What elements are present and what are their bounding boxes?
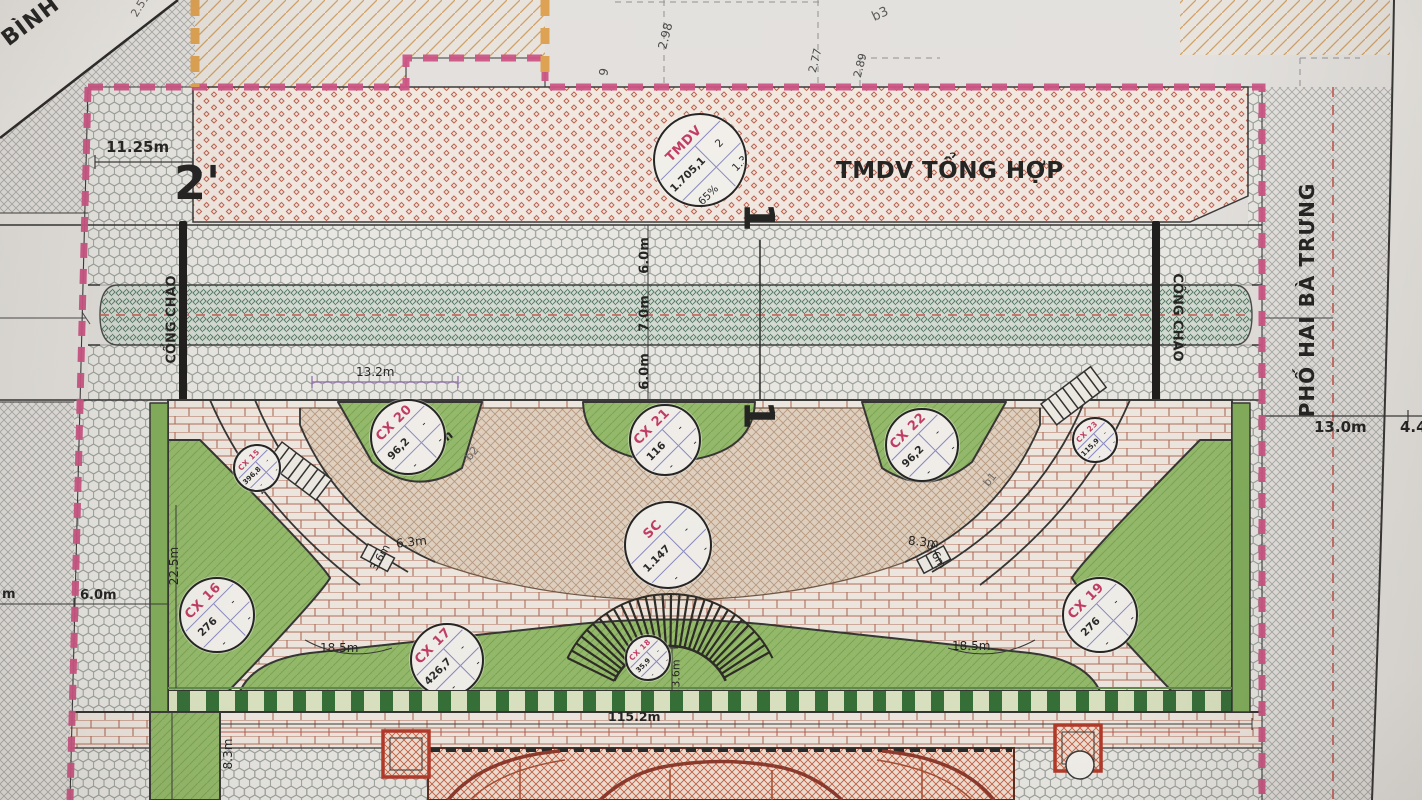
dim-11-25m: 11.25m xyxy=(106,140,169,155)
plan-circle-cx17: CX 17 426,7- -- xyxy=(410,623,484,697)
site-plan-drawing: ÁI BÌNH 2.51 11.25m 2' 9 2.98 2.77 2.89 … xyxy=(0,0,1422,800)
dim-22-5m: 22.5m xyxy=(168,542,180,590)
section-mark-1-bottom: 1 xyxy=(738,400,780,429)
top-hatch-right xyxy=(1180,0,1390,55)
section-mark-1-top: 1 xyxy=(738,202,780,231)
dim-road-top: 6.0m xyxy=(639,232,652,280)
gate-right-label: CỔNG CHÀO xyxy=(1171,263,1184,373)
plan-circle-cx16: CX 16 276- -- xyxy=(179,577,255,653)
plan-circle-cx21: CX 21 116- -- xyxy=(629,404,701,476)
dim-18-5m-left: 18.5m xyxy=(320,642,358,654)
dim-8-3m-bottom: 8.3m xyxy=(222,732,234,776)
dim-13-2m: 13.2m xyxy=(356,366,394,378)
dim-road-mid: 7.0m xyxy=(639,290,652,338)
plan-circle-cx23: CX 23 115,9- -- xyxy=(1072,417,1118,463)
dim-6-0m-left: 6.0m xyxy=(80,589,117,602)
dim-13-0m: 13.0m xyxy=(1314,420,1367,435)
tree-planter-strip xyxy=(168,690,1232,712)
dim-6-3m: 6.3m xyxy=(395,534,427,549)
plan-circle-cx18: CX 18 35,9- -- xyxy=(625,635,671,681)
tmdv-zone-title: TMDV TỔNG HỢP xyxy=(836,160,1064,183)
plan-circle-tmdv: TMDV 1.705,12 65%1.3 xyxy=(653,113,747,207)
dim-115-2m: 115.2m xyxy=(608,711,661,724)
dim-18-5m-right: 18.5m xyxy=(952,640,990,652)
plan-circle-sc: SC 1.147- -- xyxy=(624,501,712,589)
right-street-name: PHỐ HAI BÀ TRƯNG xyxy=(1297,170,1317,430)
dim-road-bot: 6.0m xyxy=(639,348,652,396)
right-street-area xyxy=(1262,0,1422,800)
plan-circle-cx19: CX 19 276- -- xyxy=(1062,577,1138,653)
dim-3-6m-center: 3.6m xyxy=(671,654,682,694)
dim-m-fragment: m xyxy=(2,588,16,601)
plan-circle-cx20: CX 20 96,2- -- xyxy=(370,399,446,475)
plan-circle-cx22: CX 22 96,2- -- xyxy=(885,408,959,482)
gate-left-label: CỔNG CHÀO xyxy=(166,265,179,375)
plan-circle-cx15: CX 15 396,8- -- xyxy=(233,444,281,492)
section-mark-2: 2' xyxy=(174,160,220,206)
dim-4-4: 4.4 xyxy=(1400,420,1422,435)
